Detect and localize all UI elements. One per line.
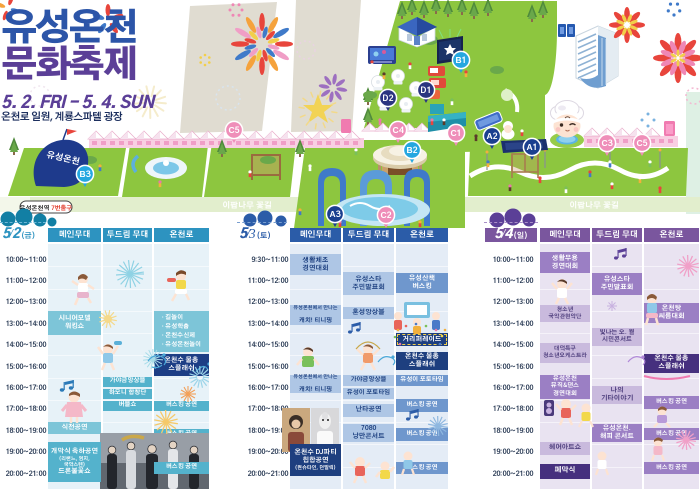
- svg-text:D2: D2: [382, 94, 393, 103]
- svg-text:C4: C4: [392, 126, 403, 135]
- svg-text:C1: C1: [450, 129, 461, 138]
- svg-text:C5: C5: [636, 139, 647, 148]
- svg-text:A1: A1: [526, 143, 537, 152]
- svg-text:B3: B3: [79, 170, 90, 179]
- svg-text:D1: D1: [420, 86, 431, 95]
- svg-text:A2: A2: [486, 132, 497, 141]
- svg-text:B1: B1: [455, 56, 466, 65]
- svg-text:이팝나무 꽃길: 이팝나무 꽃길: [222, 200, 272, 210]
- svg-text:B2: B2: [406, 146, 417, 155]
- svg-text:이팝나무 꽃길: 이팝나무 꽃길: [569, 200, 619, 210]
- svg-text:C3: C3: [601, 139, 612, 148]
- svg-text:A3: A3: [329, 210, 340, 219]
- svg-text:C2: C2: [380, 211, 391, 220]
- svg-text:C5: C5: [228, 126, 239, 135]
